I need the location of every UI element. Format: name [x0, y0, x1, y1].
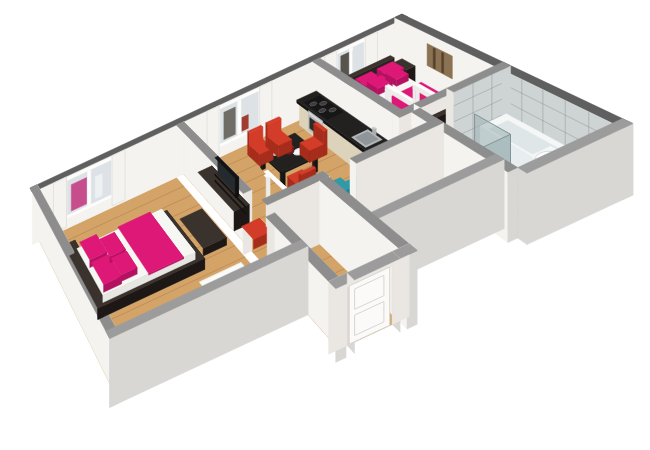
burner-4	[329, 108, 336, 112]
floorplan-svg	[0, 0, 650, 450]
artwork-streak-1	[433, 48, 435, 69]
floorplan-render	[0, 0, 650, 450]
bedroom2-window-reflection-light	[95, 174, 102, 199]
living-window-mullion	[238, 100, 241, 136]
bedroom2-curtain-right	[112, 150, 125, 206]
artwork-streak-2	[442, 52, 444, 73]
bedroom2-window-mullion	[88, 170, 91, 206]
living-window-reflection-dark	[224, 107, 235, 140]
living-window-reflection-red	[242, 115, 249, 132]
kitchen-faucet	[372, 127, 376, 135]
